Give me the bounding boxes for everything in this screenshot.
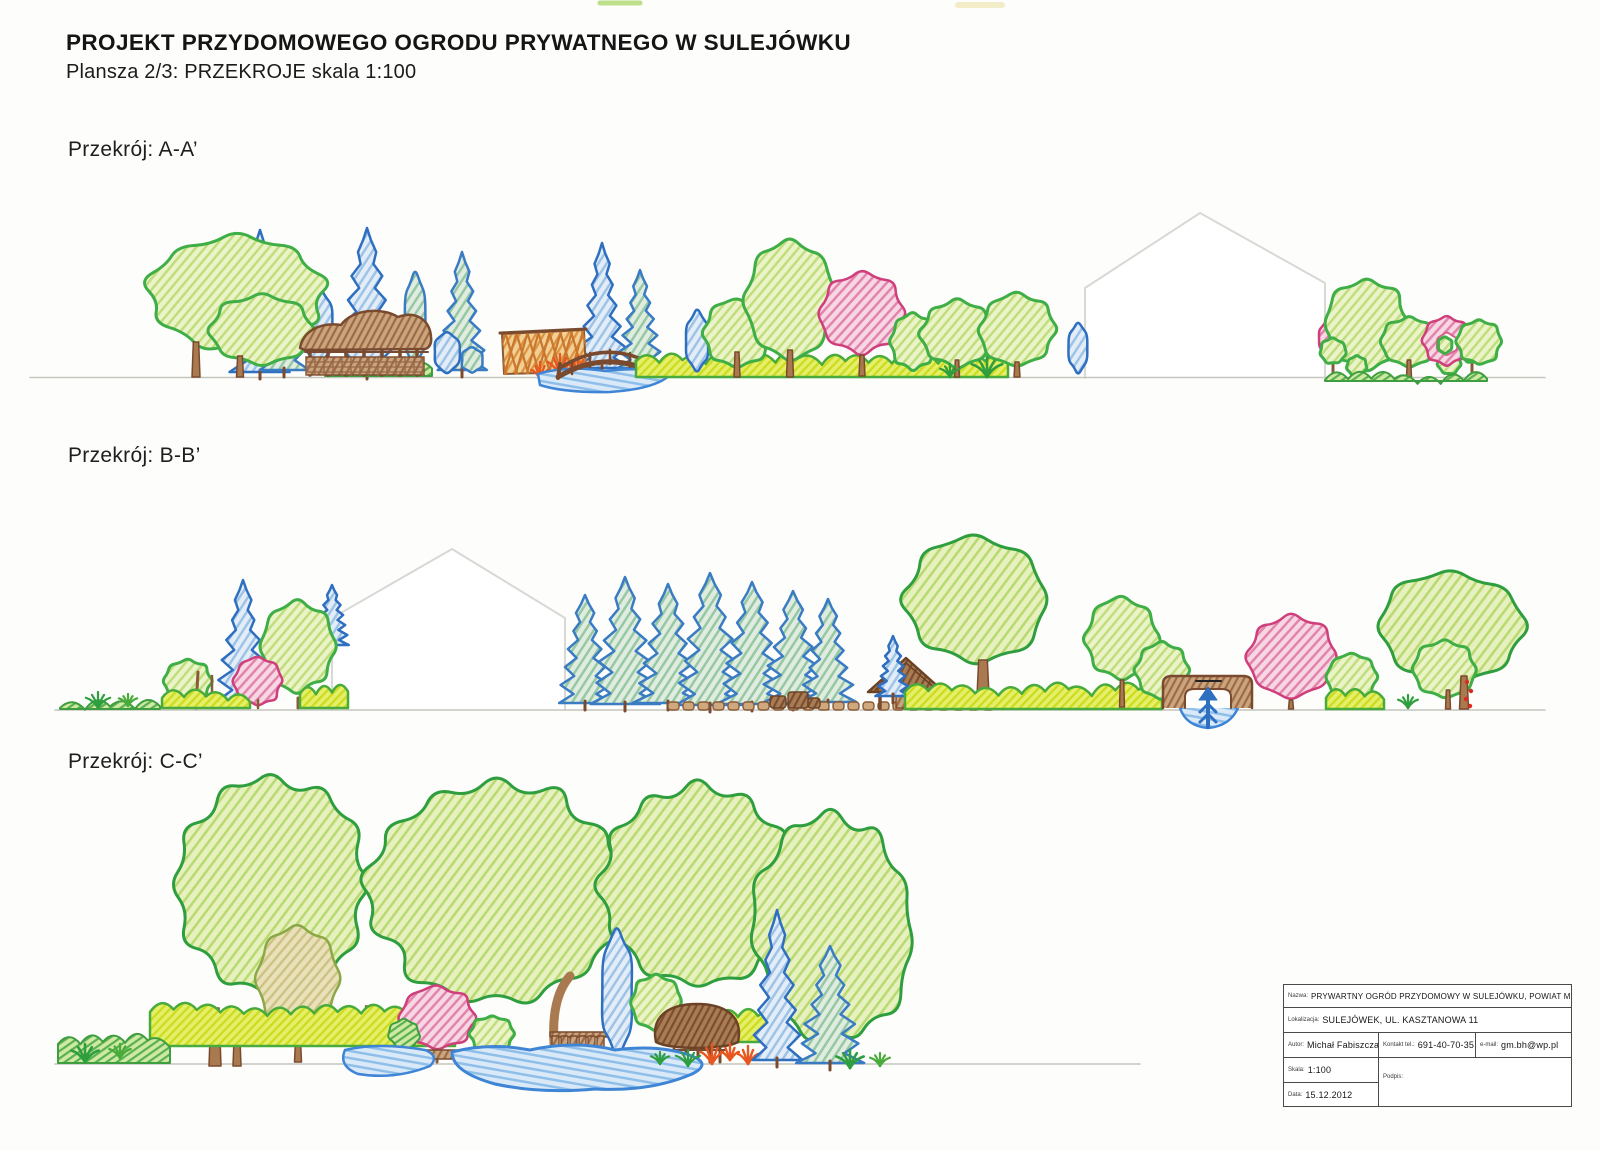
titleblock-scale-value: 1:100 xyxy=(1308,1065,1332,1075)
pond xyxy=(452,1045,702,1091)
titleblock-phone-label: Kontakt tel.: xyxy=(1383,1042,1415,1048)
berry-dots xyxy=(1464,697,1468,701)
columnar-conifer xyxy=(602,928,632,1057)
titleblock-author-cell: Autor: Michał Fabiszczak xyxy=(1284,1033,1379,1058)
stone-path xyxy=(728,702,739,710)
titleblock-location-label: Lokalizacja: xyxy=(1288,1017,1319,1023)
stone-bench xyxy=(770,696,786,708)
deciduous-tree xyxy=(361,778,628,1003)
section-b-scene xyxy=(55,535,1545,728)
titleblock-email-label: e-mail: xyxy=(1480,1042,1498,1048)
titleblock-scale-label: Skala: xyxy=(1288,1067,1305,1073)
stone-bench xyxy=(808,698,820,708)
pink-tree xyxy=(1246,614,1337,699)
deciduous-tree xyxy=(1456,320,1502,364)
stone-path xyxy=(698,702,709,710)
grass-band xyxy=(58,1034,170,1063)
tree-trunk xyxy=(1014,362,1020,377)
tree-trunk xyxy=(859,355,865,376)
stone-path xyxy=(713,702,724,710)
stone-path xyxy=(848,702,859,710)
stone-path xyxy=(743,702,754,710)
titleblock-location-cell: Lokalizacja: SULEJÓWEK, UL. KASZTANOWA 1… xyxy=(1284,1008,1571,1033)
titleblock-phone-value: 691-40-70-35 xyxy=(1418,1040,1474,1050)
titleblock-name-cell: Nazwa: PRYWARTNY OGRÓD PRZYDOMOWY W SULE… xyxy=(1284,985,1571,1008)
titleblock-author-label: Autor: xyxy=(1288,1042,1304,1048)
drawing-sheet: PROJEKT PRZYDOMOWEGO OGRODU PRYWATNEGO W… xyxy=(0,0,1600,1150)
tree-trunk xyxy=(1289,700,1294,709)
titleblock-signature-label: Podpis: xyxy=(1383,1074,1403,1080)
berry-dots xyxy=(1469,689,1473,693)
stone-path xyxy=(833,702,844,710)
titleblock-date-cell: Data: 15.12.2012 xyxy=(1284,1083,1379,1106)
house-outline xyxy=(1085,213,1325,378)
hedge xyxy=(300,685,348,708)
deciduous-tree xyxy=(1438,337,1452,354)
titleblock-location-value: SULEJÓWEK, UL. KASZTANOWA 11 xyxy=(1322,1015,1478,1025)
stone-path xyxy=(758,702,769,710)
titleblock-name-value: PRYWARTNY OGRÓD PRZYDOMOWY W SULEJÓWKU, … xyxy=(1311,992,1571,1001)
berry-dots xyxy=(1465,680,1469,684)
stone-path xyxy=(683,702,694,710)
tree-trunk xyxy=(1120,680,1125,707)
section-c-scene xyxy=(55,775,1140,1091)
stone-path xyxy=(668,702,679,710)
tree-trunk xyxy=(192,342,200,377)
title-block: Nazwa: PRYWARTNY OGRÓD PRZYDOMOWY W SULE… xyxy=(1283,984,1572,1107)
deciduous-tree xyxy=(743,239,837,360)
titleblock-name-label: Nazwa: xyxy=(1288,993,1308,999)
tree-trunk xyxy=(1446,690,1451,709)
titleblock-email-value: gm.bh@wp.pl xyxy=(1501,1040,1558,1050)
deciduous-tree xyxy=(208,294,314,366)
tree-trunk xyxy=(734,352,740,377)
tree-trunk xyxy=(237,356,244,377)
titleblock-scale-cell: Skala: 1:100 xyxy=(1284,1058,1379,1083)
bridge xyxy=(558,364,560,378)
pond xyxy=(343,1046,434,1076)
columnar-conifer xyxy=(1068,323,1087,374)
berry-dots xyxy=(1468,704,1472,708)
tree-trunk xyxy=(787,350,794,377)
titleblock-author-value: Michał Fabiszczak xyxy=(1307,1040,1379,1050)
house-outline xyxy=(332,549,565,710)
section-a-scene xyxy=(30,3,1545,392)
deciduous-tree xyxy=(978,292,1056,366)
hedge xyxy=(1326,689,1384,709)
titleblock-signature-cell: Podpis: xyxy=(1379,1058,1571,1106)
titleblock-date-label: Data: xyxy=(1288,1092,1302,1098)
stone-path xyxy=(863,702,874,710)
deciduous-tree xyxy=(901,535,1047,664)
columnar-conifer xyxy=(435,332,460,373)
titleblock-email-cell: e-mail: gm.bh@wp.pl xyxy=(1476,1033,1571,1058)
grass-band xyxy=(60,700,160,710)
drawing-canvas xyxy=(0,0,1600,1150)
mushroom-shelter xyxy=(655,1004,739,1048)
titleblock-phone-cell: Kontakt tel.: 691-40-70-35 xyxy=(1379,1033,1476,1058)
standard-tree xyxy=(1320,338,1346,363)
columnar-conifer xyxy=(462,347,483,372)
titleblock-date-value: 15.12.2012 xyxy=(1305,1090,1352,1100)
stone-bench xyxy=(788,692,808,708)
